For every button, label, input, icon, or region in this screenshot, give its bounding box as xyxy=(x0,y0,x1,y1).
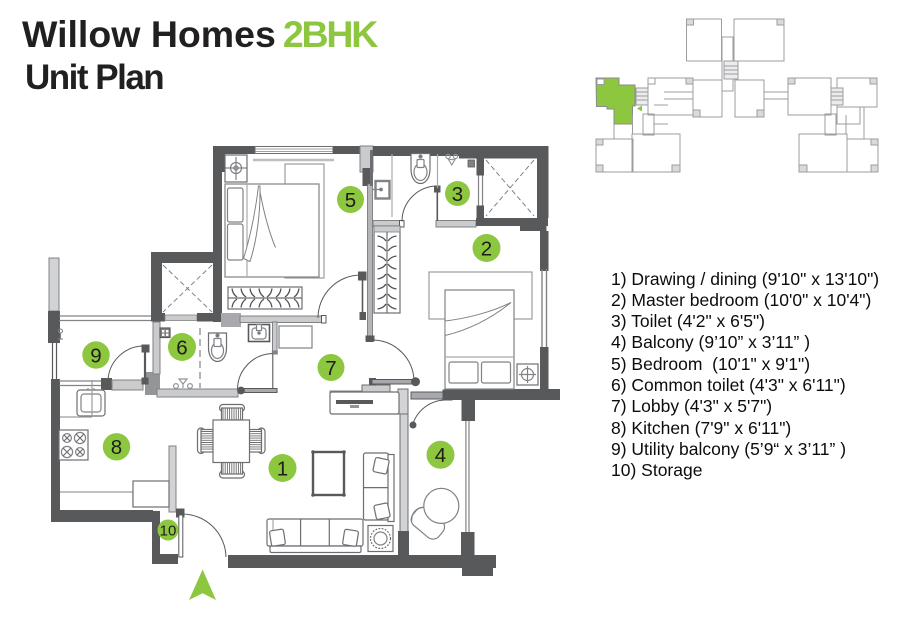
svg-text:7: 7 xyxy=(325,357,336,380)
svg-text:9: 9 xyxy=(90,344,101,367)
svg-text:5: 5 xyxy=(345,189,356,212)
svg-text:10: 10 xyxy=(160,523,177,540)
svg-text:4: 4 xyxy=(435,444,446,467)
svg-text:8: 8 xyxy=(111,436,122,459)
svg-text:3: 3 xyxy=(452,183,463,206)
svg-text:1: 1 xyxy=(277,457,288,480)
svg-text:2: 2 xyxy=(481,237,492,260)
svg-text:6: 6 xyxy=(176,336,187,359)
